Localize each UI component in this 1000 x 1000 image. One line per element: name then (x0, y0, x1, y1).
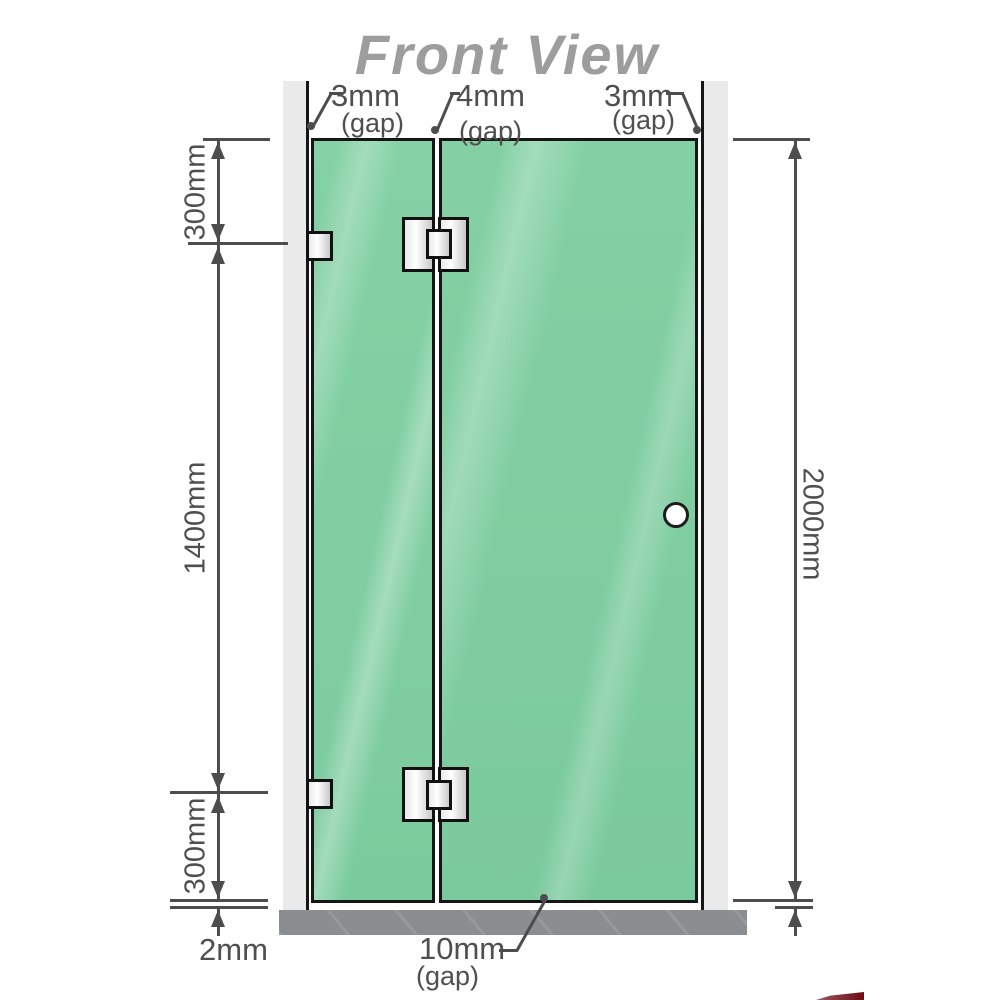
leader-line (312, 93, 333, 128)
gap-left-suffix: (gap) (341, 108, 404, 139)
gap-right-suffix: (gap) (612, 105, 675, 136)
arrow-icon (211, 224, 225, 241)
dim-right-total: 2000mm (796, 468, 829, 581)
wall-bracket-top (306, 231, 333, 261)
right-tick-glass-bottom (733, 899, 813, 902)
right-tick-base-top (775, 906, 813, 909)
hinge-top-tab (426, 229, 452, 259)
leader-line (436, 93, 454, 131)
leader-line (329, 92, 343, 95)
arrow-icon (788, 142, 802, 159)
gap-middle-suffix: (gap) (459, 116, 522, 147)
dim-base-thickness: 2mm (199, 932, 268, 968)
arrow-icon (211, 796, 225, 813)
left-tick-hinge-bottom (170, 791, 268, 794)
dim-left-bottom: 300mm (180, 798, 213, 895)
left-tick-glass-bottom (170, 899, 268, 902)
left-tick-base-top (170, 906, 268, 909)
gap-bottom-suffix: (gap) (416, 961, 479, 992)
right-glass-panel (439, 138, 698, 903)
dim-left-middle: 1400mm (180, 462, 213, 575)
arrow-icon (788, 910, 802, 927)
watermark-logo-icon (816, 992, 864, 1000)
leader-line (682, 94, 700, 130)
dim-left-top: 300mm (180, 144, 213, 241)
door-handle-icon (663, 502, 689, 528)
arrow-icon (211, 142, 225, 159)
arrow-icon (211, 910, 225, 927)
left-tick-hinge-top (188, 242, 288, 245)
leader-line (450, 92, 460, 95)
left-tick-top (203, 138, 270, 141)
leader-dot (540, 894, 548, 902)
right-tick-top (733, 138, 810, 141)
right-wall (701, 81, 728, 910)
arrow-icon (211, 247, 225, 264)
leader-dot (693, 126, 701, 134)
gap-middle-value: 4mm (456, 78, 525, 114)
wall-bracket-bottom (306, 779, 333, 809)
arrow-icon (788, 881, 802, 898)
arrow-icon (211, 773, 225, 790)
arrow-icon (211, 881, 225, 898)
front-view-diagram: Front View 300mm 1400mm 300mm 2mm 2000mm (0, 0, 1000, 1000)
base-bar (279, 910, 747, 935)
hinge-bottom-tab (426, 780, 452, 810)
